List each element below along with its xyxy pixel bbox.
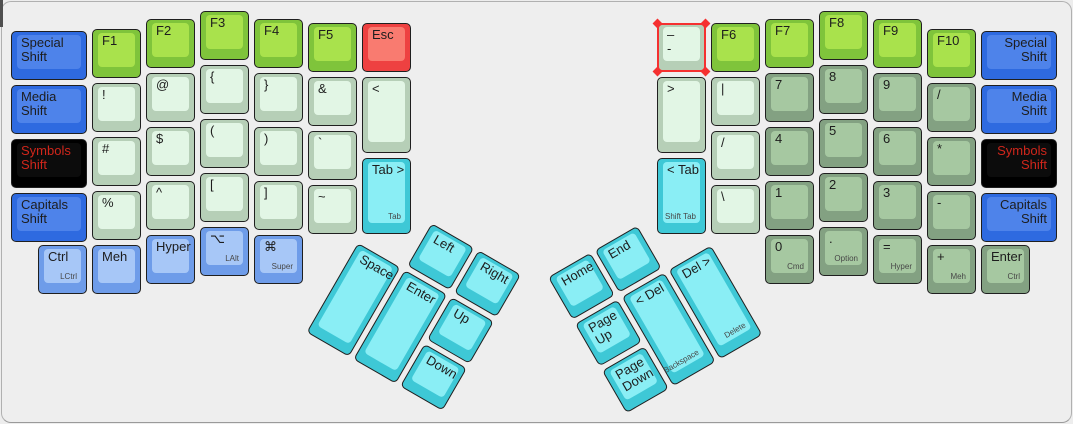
key-3[interactable]: 3 (873, 181, 922, 230)
key-media-shift-left-top-face: MediaShift (17, 89, 81, 123)
key-slash-f6-label: / (721, 136, 752, 150)
key-f9-label: F9 (883, 24, 914, 38)
key-pipe-label: | (721, 82, 752, 96)
key-capitals-shift-right[interactable]: CapitalsShift (981, 193, 1057, 242)
key-equals-sublabel: Hyper (891, 262, 912, 271)
key-hyper-left[interactable]: Hyper (146, 235, 195, 284)
key-capitals-shift-left-label: CapitalsShift (21, 198, 79, 225)
key-media-shift-left[interactable]: MediaShift (11, 85, 87, 134)
key-0-sublabel: Cmd (787, 262, 804, 271)
key-period-label: . (829, 232, 860, 246)
key-at-label: @ (156, 78, 187, 92)
key-lalt[interactable]: ⌥LAlt (200, 227, 249, 276)
keyboard-layout-canvas: SpecialShiftMediaShiftSymbolsShiftCapita… (0, 0, 1073, 424)
key-8-top-face: 8 (825, 69, 862, 103)
key-ctrl-left-sublabel: LCtrl (60, 272, 77, 281)
key-brace-open-top-face: { (206, 69, 243, 103)
key-6-top-face: 6 (879, 131, 916, 165)
key-dollar[interactable]: $ (146, 127, 195, 176)
key-pipe-top-face: | (717, 81, 754, 115)
key-special-shift-right[interactable]: SpecialShift (981, 31, 1057, 80)
key-enter-right[interactable]: EnterCtrl (981, 245, 1030, 294)
key-less-than-top-face: < (368, 81, 405, 142)
key-f5-label: F5 (318, 28, 349, 42)
key-tab-back-sublabel: Shift Tab (665, 212, 696, 221)
key-symbols-shift-left-label: SymbolsShift (21, 144, 79, 171)
key-paren-open-label: ( (210, 124, 241, 138)
key-period-sublabel: Option (834, 254, 858, 263)
key-meh-left-top-face: Meh (98, 249, 135, 283)
key-percent-top-face: % (98, 195, 135, 229)
key-plus-sublabel: Meh (950, 272, 966, 281)
key-dollar-label: $ (156, 132, 187, 146)
key-ampersand-label: & (318, 82, 349, 96)
key-greater-than[interactable]: > (657, 77, 706, 153)
key-symbols-shift-right-top-face: SymbolsShift (987, 143, 1051, 177)
key-greater-than-label: > (667, 82, 698, 96)
key-page-up-label: PageUp (586, 308, 626, 347)
key-esc-top-face: Esc (368, 27, 405, 61)
key-paren-close[interactable]: ) (254, 127, 303, 176)
key-caret-top-face: ^ (152, 185, 189, 219)
key-f3-top-face: F3 (206, 15, 243, 49)
key-esc[interactable]: Esc (362, 23, 411, 72)
key-f7[interactable]: F7 (765, 19, 814, 68)
key-bracket-open-top-face: [ (206, 177, 243, 211)
key-backtick-label: ` (318, 136, 349, 150)
key-capitals-shift-left-top-face: CapitalsShift (17, 197, 81, 231)
key-f9-top-face: F9 (879, 23, 916, 57)
key-ctrl-left-top-face: CtrlLCtrl (44, 249, 81, 283)
key-brace-close[interactable]: } (254, 73, 303, 122)
key-tilde[interactable]: ~ (308, 185, 357, 234)
key-0-label: 0 (775, 240, 806, 254)
key-1-label: 1 (775, 186, 806, 200)
key-meh-left-label: Meh (102, 250, 133, 264)
key-symbols-shift-left-top-face: SymbolsShift (17, 143, 81, 177)
key-symbols-shift-left[interactable]: SymbolsShift (11, 139, 87, 188)
key-hash[interactable]: # (92, 137, 141, 186)
key-super-top-face: ⌘Super (260, 239, 297, 273)
key-tab-back[interactable]: < TabShift Tab (657, 158, 706, 234)
key-9-label: 9 (883, 78, 914, 92)
key-tab-forward[interactable]: Tab >Tab (362, 158, 411, 234)
key-caret[interactable]: ^ (146, 181, 195, 230)
key-period-top-face: .Option (825, 231, 862, 265)
key-bracket-open[interactable]: [ (200, 173, 249, 222)
key-f1[interactable]: F1 (92, 29, 141, 78)
key-at[interactable]: @ (146, 73, 195, 122)
key-special-shift-left[interactable]: SpecialShift (11, 31, 87, 80)
key-7[interactable]: 7 (765, 73, 814, 122)
key-5-label: 5 (829, 124, 860, 138)
key-backslash-label: \ (721, 190, 752, 204)
key-tilde-label: ~ (318, 190, 349, 204)
key-minus-label: - (937, 196, 968, 210)
key-media-shift-right[interactable]: MediaShift (981, 85, 1057, 134)
key-4[interactable]: 4 (765, 127, 814, 176)
key-symbols-shift-right[interactable]: SymbolsShift (981, 139, 1057, 188)
key-enter-right-top-face: EnterCtrl (987, 249, 1024, 283)
key-special-shift-right-top-face: SpecialShift (987, 35, 1051, 69)
key-brace-open[interactable]: { (200, 65, 249, 114)
key-brace-close-top-face: } (260, 77, 297, 111)
key-plus-label: + (937, 250, 968, 264)
key-8-label: 8 (829, 70, 860, 84)
key-plus-top-face: +Meh (933, 249, 970, 283)
key-f9[interactable]: F9 (873, 19, 922, 68)
key-meh-left[interactable]: Meh (92, 245, 141, 294)
key-tab-back-label: < Tab (667, 163, 698, 177)
key-7-top-face: 7 (771, 77, 808, 111)
key-6[interactable]: 6 (873, 127, 922, 176)
key-4-label: 4 (775, 132, 806, 146)
key-asterisk[interactable]: * (927, 137, 976, 186)
key-f2-top-face: F2 (152, 23, 189, 57)
key-tab-forward-sublabel: Tab (388, 212, 401, 221)
key-equals-label: = (883, 240, 914, 254)
key-special-shift-left-label: SpecialShift (21, 36, 79, 63)
key-backspace-sublabel: Backspace (662, 348, 700, 375)
key-f10[interactable]: F10 (927, 29, 976, 78)
screen-edge-artifact (0, 0, 3, 27)
key-7-label: 7 (775, 78, 806, 92)
key-f7-top-face: F7 (771, 23, 808, 57)
key-period[interactable]: .Option (819, 227, 868, 276)
key-f5-top-face: F5 (314, 27, 351, 61)
key-symbols-shift-right-label: SymbolsShift (989, 144, 1047, 171)
key-f6[interactable]: F6 (711, 23, 760, 72)
key-3-label: 3 (883, 186, 914, 200)
key-f5[interactable]: F5 (308, 23, 357, 72)
key-5-top-face: 5 (825, 123, 862, 157)
key-f10-top-face: F10 (933, 33, 970, 67)
key-f1-top-face: F1 (98, 33, 135, 67)
key-2[interactable]: 2 (819, 173, 868, 222)
key-media-shift-left-label: MediaShift (21, 90, 79, 117)
key-caret-label: ^ (156, 186, 187, 200)
key-ctrl-left-label: Ctrl (48, 250, 79, 264)
key-tab-back-top-face: < TabShift Tab (663, 162, 700, 223)
key-f6-top-face: F6 (717, 27, 754, 61)
key-capitals-shift-right-top-face: CapitalsShift (987, 197, 1051, 231)
key-f10-label: F10 (937, 34, 968, 48)
key-f8-label: F8 (829, 16, 860, 30)
key-capitals-shift-left[interactable]: CapitalsShift (11, 193, 87, 242)
key-brace-close-label: } (264, 78, 295, 92)
key-paren-open[interactable]: ( (200, 119, 249, 168)
key-percent-label: % (102, 196, 133, 210)
key-backslash-top-face: \ (717, 189, 754, 223)
key-lalt-sublabel: LAlt (225, 254, 239, 263)
key-slash-f10[interactable]: / (927, 83, 976, 132)
key-f4-top-face: F4 (260, 23, 297, 57)
key-f2[interactable]: F2 (146, 19, 195, 68)
key-hyper-left-label: Hyper (156, 240, 187, 254)
key-minus-top-face: - (933, 195, 970, 229)
key-slash-f6-top-face: / (717, 135, 754, 169)
key-f6-label: F6 (721, 28, 752, 42)
key-0[interactable]: 0Cmd (765, 235, 814, 284)
key-ctrl-left[interactable]: CtrlLCtrl (38, 245, 87, 294)
key-pipe[interactable]: | (711, 77, 760, 126)
key-delete-sublabel: Delete (723, 321, 748, 340)
key-page-down-label: PageDown (613, 355, 653, 394)
key-paren-open-top-face: ( (206, 123, 243, 157)
key-2-label: 2 (829, 178, 860, 192)
key-dollar-top-face: $ (152, 131, 189, 165)
key-backtick[interactable]: ` (308, 131, 357, 180)
key-less-than-label: < (372, 82, 403, 96)
key-hash-top-face: # (98, 141, 135, 175)
key-hash-label: # (102, 142, 133, 156)
key-minus[interactable]: - (927, 191, 976, 240)
key-exclamation-label: ! (102, 88, 133, 102)
key-media-shift-right-label: MediaShift (989, 90, 1047, 117)
key-8[interactable]: 8 (819, 65, 868, 114)
key-enter-right-label: Enter (991, 250, 1022, 264)
key-9[interactable]: 9 (873, 73, 922, 122)
key-plus[interactable]: +Meh (927, 245, 976, 294)
key-at-top-face: @ (152, 77, 189, 111)
key-backslash[interactable]: \ (711, 185, 760, 234)
key-dash-selected-top-face: –- (663, 27, 700, 61)
key-super[interactable]: ⌘Super (254, 235, 303, 284)
key-paren-close-top-face: ) (260, 131, 297, 165)
key-esc-label: Esc (372, 28, 403, 42)
key-tilde-top-face: ~ (314, 189, 351, 223)
key-f7-label: F7 (775, 24, 806, 38)
key-9-top-face: 9 (879, 77, 916, 111)
key-3-top-face: 3 (879, 185, 916, 219)
key-special-shift-left-top-face: SpecialShift (17, 35, 81, 69)
key-brace-open-label: { (210, 70, 241, 84)
key-bracket-close-top-face: ] (260, 185, 297, 219)
key-super-sublabel: Super (272, 262, 293, 271)
key-tab-forward-top-face: Tab >Tab (368, 162, 405, 223)
key-equals[interactable]: =Hyper (873, 235, 922, 284)
key-4-top-face: 4 (771, 131, 808, 165)
key-capitals-shift-right-label: CapitalsShift (989, 198, 1047, 225)
key-asterisk-label: * (937, 142, 968, 156)
key-f8-top-face: F8 (825, 15, 862, 49)
key-f8[interactable]: F8 (819, 11, 868, 60)
key-greater-than-top-face: > (663, 81, 700, 142)
key-2-top-face: 2 (825, 177, 862, 211)
key-1[interactable]: 1 (765, 181, 814, 230)
key-asterisk-top-face: * (933, 141, 970, 175)
key-f3-label: F3 (210, 16, 241, 30)
key-percent[interactable]: % (92, 191, 141, 240)
key-bracket-open-label: [ (210, 178, 241, 192)
key-super-label: ⌘ (264, 240, 295, 254)
key-bracket-close-label: ] (264, 186, 295, 200)
key-slash-f6[interactable]: / (711, 131, 760, 180)
key-lalt-label: ⌥ (210, 232, 241, 246)
key-lalt-top-face: ⌥LAlt (206, 231, 243, 265)
key-0-top-face: 0Cmd (771, 239, 808, 273)
key-backtick-top-face: ` (314, 135, 351, 169)
key-bracket-close[interactable]: ] (254, 181, 303, 230)
key-tab-forward-label: Tab > (372, 163, 403, 177)
key-ampersand[interactable]: & (308, 77, 357, 126)
key-exclamation[interactable]: ! (92, 83, 141, 132)
key-special-shift-right-label: SpecialShift (989, 36, 1047, 63)
key-6-label: 6 (883, 132, 914, 146)
key-equals-top-face: =Hyper (879, 239, 916, 273)
key-exclamation-top-face: ! (98, 87, 135, 121)
key-dash-selected-label: –- (667, 28, 698, 55)
key-enter-right-sublabel: Ctrl (1008, 272, 1020, 281)
key-media-shift-right-top-face: MediaShift (987, 89, 1051, 123)
key-f2-label: F2 (156, 24, 187, 38)
key-ampersand-top-face: & (314, 81, 351, 115)
key-dash-selected[interactable]: –- (657, 23, 706, 72)
key-f1-label: F1 (102, 34, 133, 48)
key-slash-f10-top-face: / (933, 87, 970, 121)
key-5[interactable]: 5 (819, 119, 868, 168)
key-f4[interactable]: F4 (254, 19, 303, 68)
key-paren-close-label: ) (264, 132, 295, 146)
key-1-top-face: 1 (771, 185, 808, 219)
key-slash-f10-label: / (937, 88, 968, 102)
key-less-than[interactable]: < (362, 77, 411, 153)
key-f3[interactable]: F3 (200, 11, 249, 60)
key-f4-label: F4 (264, 24, 295, 38)
key-hyper-left-top-face: Hyper (152, 239, 189, 273)
